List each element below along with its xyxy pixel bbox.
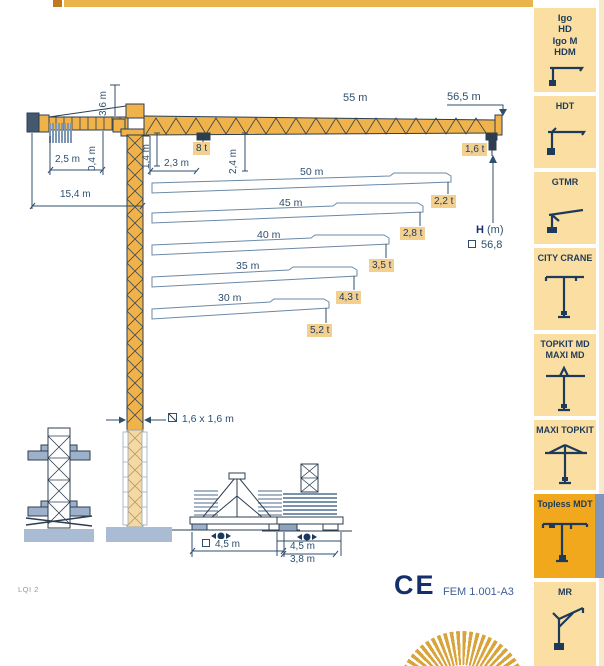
height-symbol: H	[476, 224, 484, 236]
dimension-lines	[30, 85, 507, 424]
sidebar-item-hdt[interactable]: HDT	[534, 96, 596, 168]
dim-tower-head: 3,6 m	[99, 80, 109, 116]
section-edge-tab[interactable]	[595, 494, 604, 578]
climbing-section-diagram	[24, 428, 94, 542]
height-axis-label: H (m)	[476, 224, 504, 236]
tip-trolley-hook	[486, 133, 497, 156]
chassis-lower-dim: 3,8 m	[288, 555, 317, 565]
max-capacity-badge: 8 t	[193, 142, 210, 155]
jib-configurations	[152, 173, 451, 323]
chassis-upper-dim: 4,5 m	[288, 542, 317, 552]
sidebar-item-label: Topless MDT	[534, 494, 596, 510]
sun-rays-logo	[397, 631, 527, 666]
jib-row-length: 50 m	[300, 167, 323, 178]
square-mast-symbol	[468, 240, 476, 248]
square-base-symbol	[202, 539, 210, 547]
square-section-icon	[168, 413, 177, 422]
city-crane-icon	[542, 267, 588, 319]
dim-gap: 0,4 m	[88, 139, 98, 171]
fem-standard: FEM 1.001-A3	[443, 586, 514, 598]
sidebar-item-city-crane[interactable]: CITY CRANE	[534, 248, 596, 330]
jib-row-length: 45 m	[279, 198, 302, 209]
topkit-md-crane-icon	[542, 364, 588, 412]
brochure-page: 3,6 m 2,5 m 0,4 m 1,4 m 2,3 m 2,4 m 15,4…	[0, 0, 604, 666]
sidebar-item-label: MAXI TOPKIT	[534, 420, 596, 436]
tip-capacity-badge: 1,6 t	[462, 143, 487, 156]
gtmr-crane-icon	[543, 191, 587, 235]
tower-mast	[106, 135, 172, 542]
igo-crane-icon	[545, 62, 585, 88]
height-unit: (m)	[487, 224, 504, 236]
maxi-topkit-crane-icon	[541, 439, 589, 485]
jib-row-load: 2,8 t	[400, 227, 425, 240]
jib-total-length-label: 55 m	[343, 93, 367, 104]
mr-crane-icon	[541, 601, 589, 651]
slew-axis-marker-2	[297, 534, 317, 541]
cross-base-value: 4,5 m	[215, 539, 240, 550]
jib-row-load: 3,5 t	[369, 259, 394, 272]
sidebar-item-label: HDT	[534, 96, 596, 112]
dim-jib-depth: 1,4 m	[142, 137, 152, 169]
sidebar-item-igo[interactable]: Igo HD Igo M HDM	[534, 8, 596, 92]
dim-hook-drop: 2,4 m	[229, 140, 239, 174]
height-value-row: 56,8	[468, 239, 502, 251]
topless-mdt-crane-icon	[541, 513, 589, 565]
sidebar-item-mr[interactable]: MR	[534, 582, 596, 666]
jib-row-length: 40 m	[257, 230, 280, 241]
jib-row-load: 4,3 t	[336, 291, 361, 304]
height-value: 56,8	[481, 239, 502, 251]
sidebar-item-label: MR	[534, 582, 596, 598]
sidebar-item-label: Igo HD Igo M HDM	[534, 8, 596, 59]
sidebar-item-maxi-topkit[interactable]: MAXI TOPKIT	[534, 420, 596, 490]
dim-counterjib-radius: 15,4 m	[60, 190, 91, 200]
jib-row-load: 2,2 t	[431, 195, 456, 208]
sidebar-item-label: GTMR	[534, 172, 596, 188]
cross-base-dim: 4,5 m	[200, 539, 242, 550]
sidebar-item-label: CITY CRANE	[534, 248, 596, 264]
jib-tip-radius-label: 56,5 m	[447, 92, 481, 103]
jib-row-length: 30 m	[218, 293, 241, 304]
model-code: LQI 2	[18, 585, 39, 594]
hdt-crane-icon	[543, 115, 587, 157]
mast-section-label: 1,6 x 1,6 m	[168, 413, 234, 425]
sidebar-item-gtmr[interactable]: GTMR	[534, 172, 596, 244]
dim-counterweight-radius: 2,5 m	[55, 155, 80, 165]
dim-min-radius: 2,3 m	[164, 159, 189, 169]
jib-row-length: 35 m	[236, 261, 259, 272]
mast-section-value: 1,6 x 1,6 m	[182, 413, 234, 425]
sidebar-item-label: TOPKIT MD MAXI MD	[534, 334, 596, 361]
jib-row-load: 5,2 t	[307, 324, 332, 337]
ce-mark: CE	[394, 572, 436, 599]
sidebar-item-topless-mdt[interactable]: Topless MDT	[534, 494, 596, 578]
sidebar-item-topkit-md[interactable]: TOPKIT MD MAXI MD	[534, 334, 596, 416]
tower-foundation	[106, 527, 172, 542]
